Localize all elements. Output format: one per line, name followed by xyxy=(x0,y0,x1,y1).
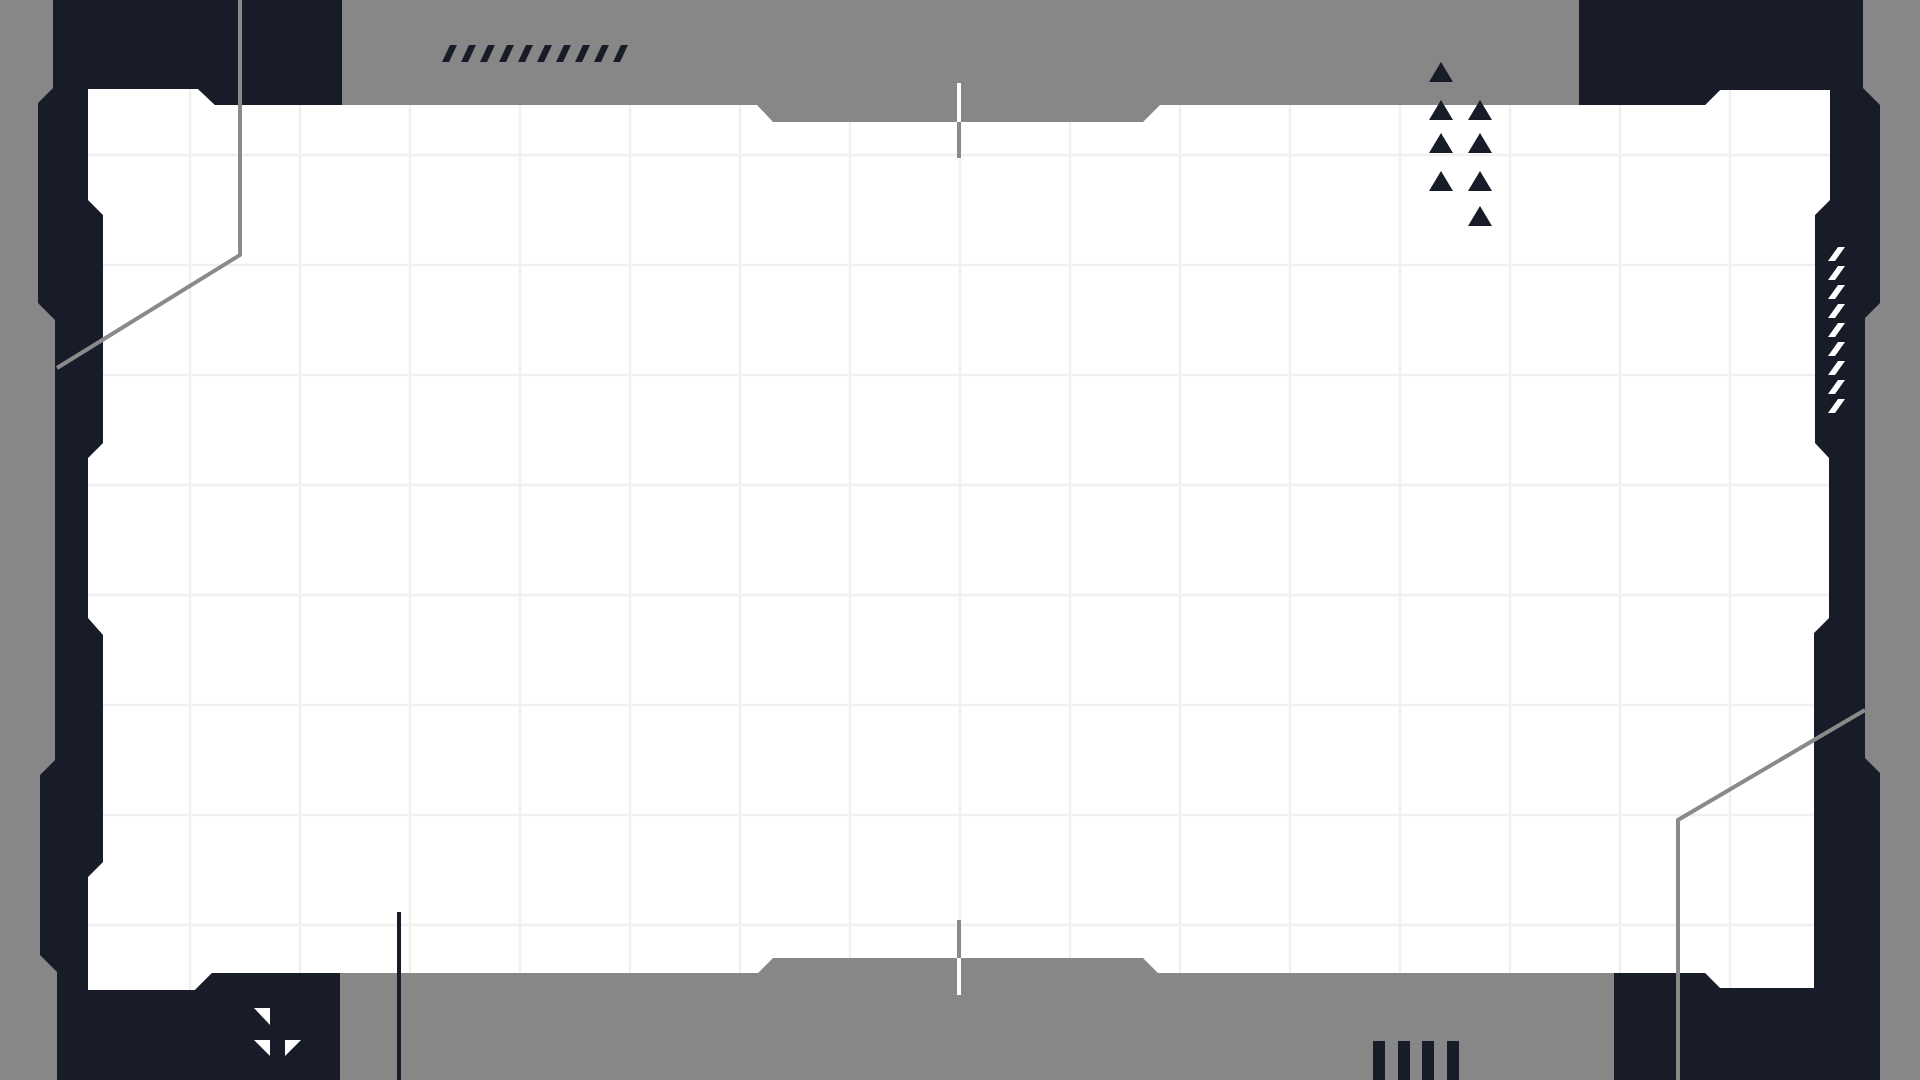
bottom-left-rule xyxy=(397,912,401,1080)
bottom-tick-white xyxy=(957,958,961,995)
bar-icon xyxy=(1398,1041,1410,1080)
top-tick-gray xyxy=(957,122,961,158)
hud-frame-canvas xyxy=(0,0,1920,1080)
bottom-tick-gray xyxy=(957,920,961,958)
top-tick-white xyxy=(957,83,961,122)
bar-icon xyxy=(1447,1041,1459,1080)
bar-icon xyxy=(1422,1041,1434,1080)
hud-frame-overlay xyxy=(0,0,1920,1080)
bar-icon xyxy=(1373,1041,1385,1080)
